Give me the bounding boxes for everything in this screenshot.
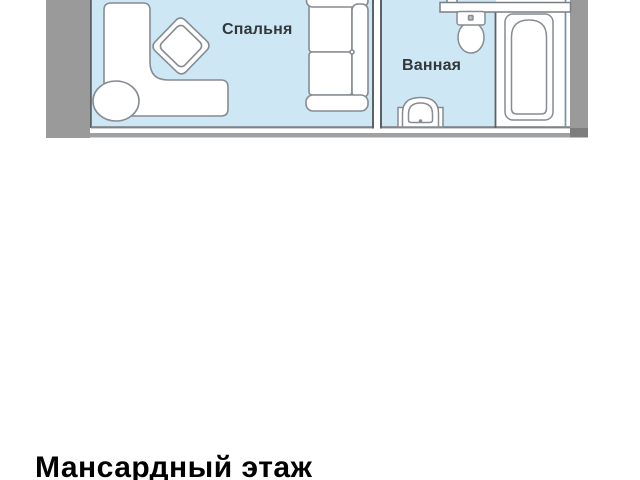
room-label-bedroom: Спальня (222, 21, 293, 39)
toilet-icon (457, 12, 485, 54)
wall-shelf-icon (440, 0, 571, 12)
floor-plan: Спальня Ванная (0, 0, 640, 145)
bottom-wall (46, 133, 588, 138)
right-wall (570, 0, 588, 128)
alcove-left-line (495, 3, 497, 128)
bottom-inner-line (91, 126, 570, 128)
room-label-bathroom: Ванная (402, 57, 461, 75)
right-wall-base (570, 128, 588, 138)
alcove-right-line (565, 0, 567, 128)
left-wall-inner-line (90, 0, 92, 128)
floor-plan-drawing (0, 0, 640, 145)
sofa-bed-icon (306, 0, 368, 111)
floor-plan-screenshot: Спальня Ванная Мансардный этаж (0, 0, 640, 480)
bathtub-icon (505, 14, 553, 120)
floor-title: Мансардный этаж (35, 453, 312, 480)
left-wall (46, 0, 90, 138)
partition-wall (372, 0, 382, 129)
ottoman-icon (93, 81, 139, 121)
